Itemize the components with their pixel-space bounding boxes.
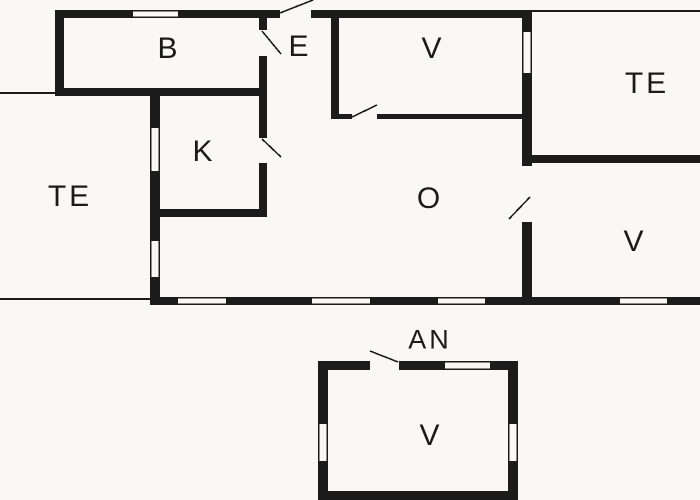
wall-bottom xyxy=(150,297,700,305)
room-label-v-top: V xyxy=(421,34,444,64)
window-bottom-wall-4 xyxy=(620,297,667,305)
room-label-o: O xyxy=(417,184,443,214)
window-bottom-wall-1 xyxy=(178,297,226,305)
annex-label: AN xyxy=(408,327,452,354)
room-label-k: K xyxy=(192,137,215,167)
window-bottom-wall-2 xyxy=(312,297,370,305)
window-west-wall-lower xyxy=(150,241,160,277)
wall-room-b-bottom xyxy=(55,88,267,96)
window-top-wall xyxy=(133,10,178,18)
door-opening-v-o xyxy=(352,113,377,120)
room-label-e: E xyxy=(288,32,311,62)
window-annex-top xyxy=(445,361,490,370)
line-terrace-left-bottom xyxy=(0,298,151,300)
door-opening-b-e xyxy=(258,30,268,56)
room-label-te-left: TE xyxy=(48,182,92,212)
door-opening-o-v-right xyxy=(521,166,532,222)
window-annex-right xyxy=(508,424,518,461)
wall-terrace-right-bottom xyxy=(522,155,700,163)
floor-plan: B E V TE TE K O V AN V xyxy=(0,0,700,500)
room-label-te-right: TE xyxy=(625,69,669,99)
wall-room-k-bottom xyxy=(150,209,267,217)
door-opening-k xyxy=(258,138,268,163)
window-bottom-wall-3 xyxy=(438,297,485,305)
floor-plan-drawing xyxy=(0,0,700,500)
window-west-wall-upper xyxy=(150,128,160,171)
door-opening-annex xyxy=(370,360,399,371)
wall-room-v-left xyxy=(331,13,339,119)
wall-room-b-left xyxy=(55,10,64,96)
line-terrace-right-top xyxy=(532,10,700,12)
window-annex-left xyxy=(318,424,328,461)
wall-annex-bottom xyxy=(318,491,518,500)
room-label-v-annex: V xyxy=(419,421,442,451)
room-label-v-right: V xyxy=(623,227,646,257)
line-terrace-left-top xyxy=(0,92,56,94)
room-label-b: B xyxy=(157,34,180,64)
window-east-wall xyxy=(522,32,532,73)
